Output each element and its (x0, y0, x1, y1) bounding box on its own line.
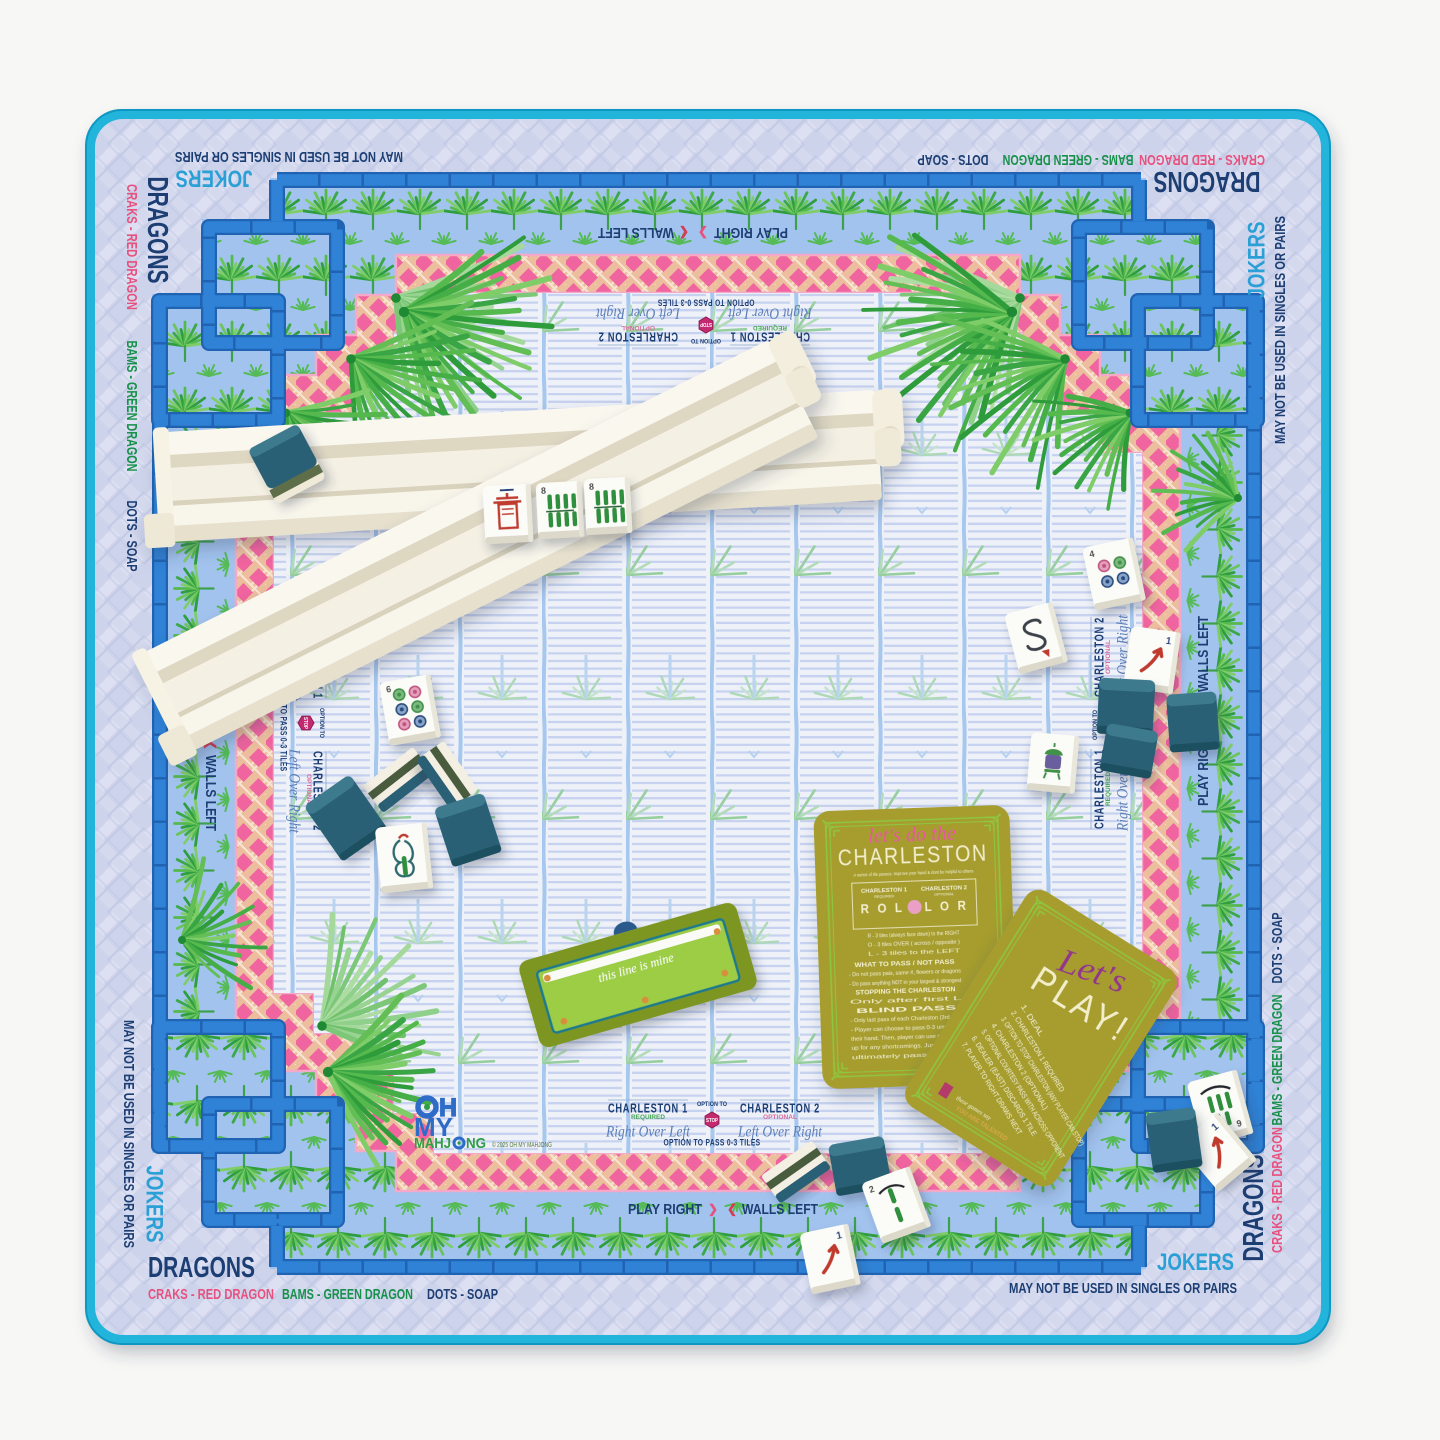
svg-text:WALLS LEFT: WALLS LEFT (202, 755, 219, 831)
svg-text:STOP: STOP (699, 321, 712, 327)
svg-text:JOKERS: JOKERS (1243, 222, 1270, 299)
svg-text:OPTIONAL: OPTIONAL (621, 324, 655, 330)
svg-text:REQUIRED: REQUIRED (874, 893, 894, 899)
svg-text:CHARLESTON 1: CHARLESTON 1 (608, 1101, 688, 1116)
svg-text:REQUIRED: REQUIRED (1106, 771, 1112, 806)
svg-text:DRAGONS: DRAGONS (1154, 165, 1261, 197)
svg-text:WALLS LEFT: WALLS LEFT (598, 224, 674, 241)
svg-text:8: 8 (541, 486, 547, 496)
svg-text:STOP: STOP (302, 717, 308, 730)
svg-text:OPTIONAL: OPTIONAL (1106, 640, 1112, 674)
svg-text:DRAGONS: DRAGONS (141, 177, 173, 284)
svg-text:BAMS - GREEN DRAGON: BAMS - GREEN DRAGON (123, 341, 140, 472)
svg-text:❯: ❯ (708, 1202, 718, 1217)
svg-text:PLAY RIGHT: PLAY RIGHT (714, 224, 788, 241)
svg-text:DOTS - SOAP: DOTS - SOAP (1269, 913, 1286, 984)
svg-text:MAY NOT BE USED IN SINGLES OR: MAY NOT BE USED IN SINGLES OR PAIRS (120, 1020, 137, 1248)
svg-text:OPTION TO: OPTION TO (318, 708, 324, 738)
svg-text:OPTION TO: OPTION TO (697, 1102, 727, 1108)
svg-text:DOTS - SOAP: DOTS - SOAP (427, 1286, 498, 1303)
svg-text:CHARLESTON 2: CHARLESTON 2 (598, 329, 678, 344)
svg-text:CRAKS - RED DRAGON: CRAKS - RED DRAGON (123, 184, 140, 310)
svg-text:OPTION TO: OPTION TO (691, 337, 721, 343)
svg-text:OPTIONAL: OPTIONAL (763, 1115, 797, 1121)
svg-text:CRAKS - RED DRAGON: CRAKS - RED DRAGON (1139, 151, 1265, 168)
svg-text:© 2025 OH MY MAHJONG: © 2025 OH MY MAHJONG (492, 1141, 552, 1149)
svg-text:L O R: L O R (924, 898, 968, 915)
svg-text:REQUIRED: REQUIRED (631, 1115, 666, 1121)
svg-text:REQUIRED: REQUIRED (752, 324, 787, 330)
svg-text:CRAKS - RED DRAGON: CRAKS - RED DRAGON (148, 1286, 274, 1303)
svg-text:DRAGONS: DRAGONS (148, 1252, 255, 1284)
svg-text:NG: NG (466, 1135, 486, 1152)
svg-text:MAY NOT BE USED IN SINGLES OR: MAY NOT BE USED IN SINGLES OR PAIRS (1009, 1280, 1237, 1297)
svg-text:8: 8 (589, 482, 595, 492)
svg-text:BAMS - GREEN DRAGON: BAMS - GREEN DRAGON (1269, 995, 1286, 1126)
svg-text:DOTS - SOAP: DOTS - SOAP (123, 501, 140, 572)
svg-text:OPTIONAL: OPTIONAL (934, 891, 955, 897)
svg-text:JOKERS: JOKERS (141, 1166, 168, 1243)
svg-text:WALLS LEFT: WALLS LEFT (1195, 616, 1212, 692)
svg-text:JOKERS: JOKERS (176, 165, 253, 192)
svg-text:❮: ❮ (679, 225, 689, 240)
svg-text:DOTS - SOAP: DOTS - SOAP (918, 151, 989, 168)
svg-text:CHARLESTON 2: CHARLESTON 2 (740, 1101, 820, 1116)
svg-text:CRAKS - RED DRAGON: CRAKS - RED DRAGON (1269, 1127, 1286, 1253)
svg-text:OPTION TO PASS 0-3 TILES: OPTION TO PASS 0-3 TILES (664, 1137, 761, 1148)
svg-text:WALLS LEFT: WALLS LEFT (742, 1201, 818, 1218)
svg-text:MAY NOT BE USED IN SINGLES OR: MAY NOT BE USED IN SINGLES OR PAIRS (175, 148, 403, 165)
svg-text:STOP: STOP (706, 1118, 719, 1124)
svg-text:JOKERS: JOKERS (1157, 1249, 1234, 1276)
svg-text:❯: ❯ (698, 225, 708, 240)
svg-text:PLAY RIGHT: PLAY RIGHT (628, 1201, 702, 1218)
svg-text:MAY NOT BE USED IN SINGLES OR: MAY NOT BE USED IN SINGLES OR PAIRS (1272, 216, 1289, 444)
svg-text:❮: ❮ (727, 1202, 737, 1217)
svg-text:CHARLESTON: CHARLESTON (837, 839, 988, 870)
svg-text:BAMS - GREEN DRAGON: BAMS - GREEN DRAGON (1003, 151, 1134, 168)
svg-text:BAMS - GREEN DRAGON: BAMS - GREEN DRAGON (282, 1286, 413, 1303)
svg-text:MAHJ: MAHJ (414, 1135, 451, 1152)
svg-text:OPTION TO PASS 0-3 TILES: OPTION TO PASS 0-3 TILES (658, 297, 755, 308)
svg-text:R O L: R O L (860, 900, 904, 917)
